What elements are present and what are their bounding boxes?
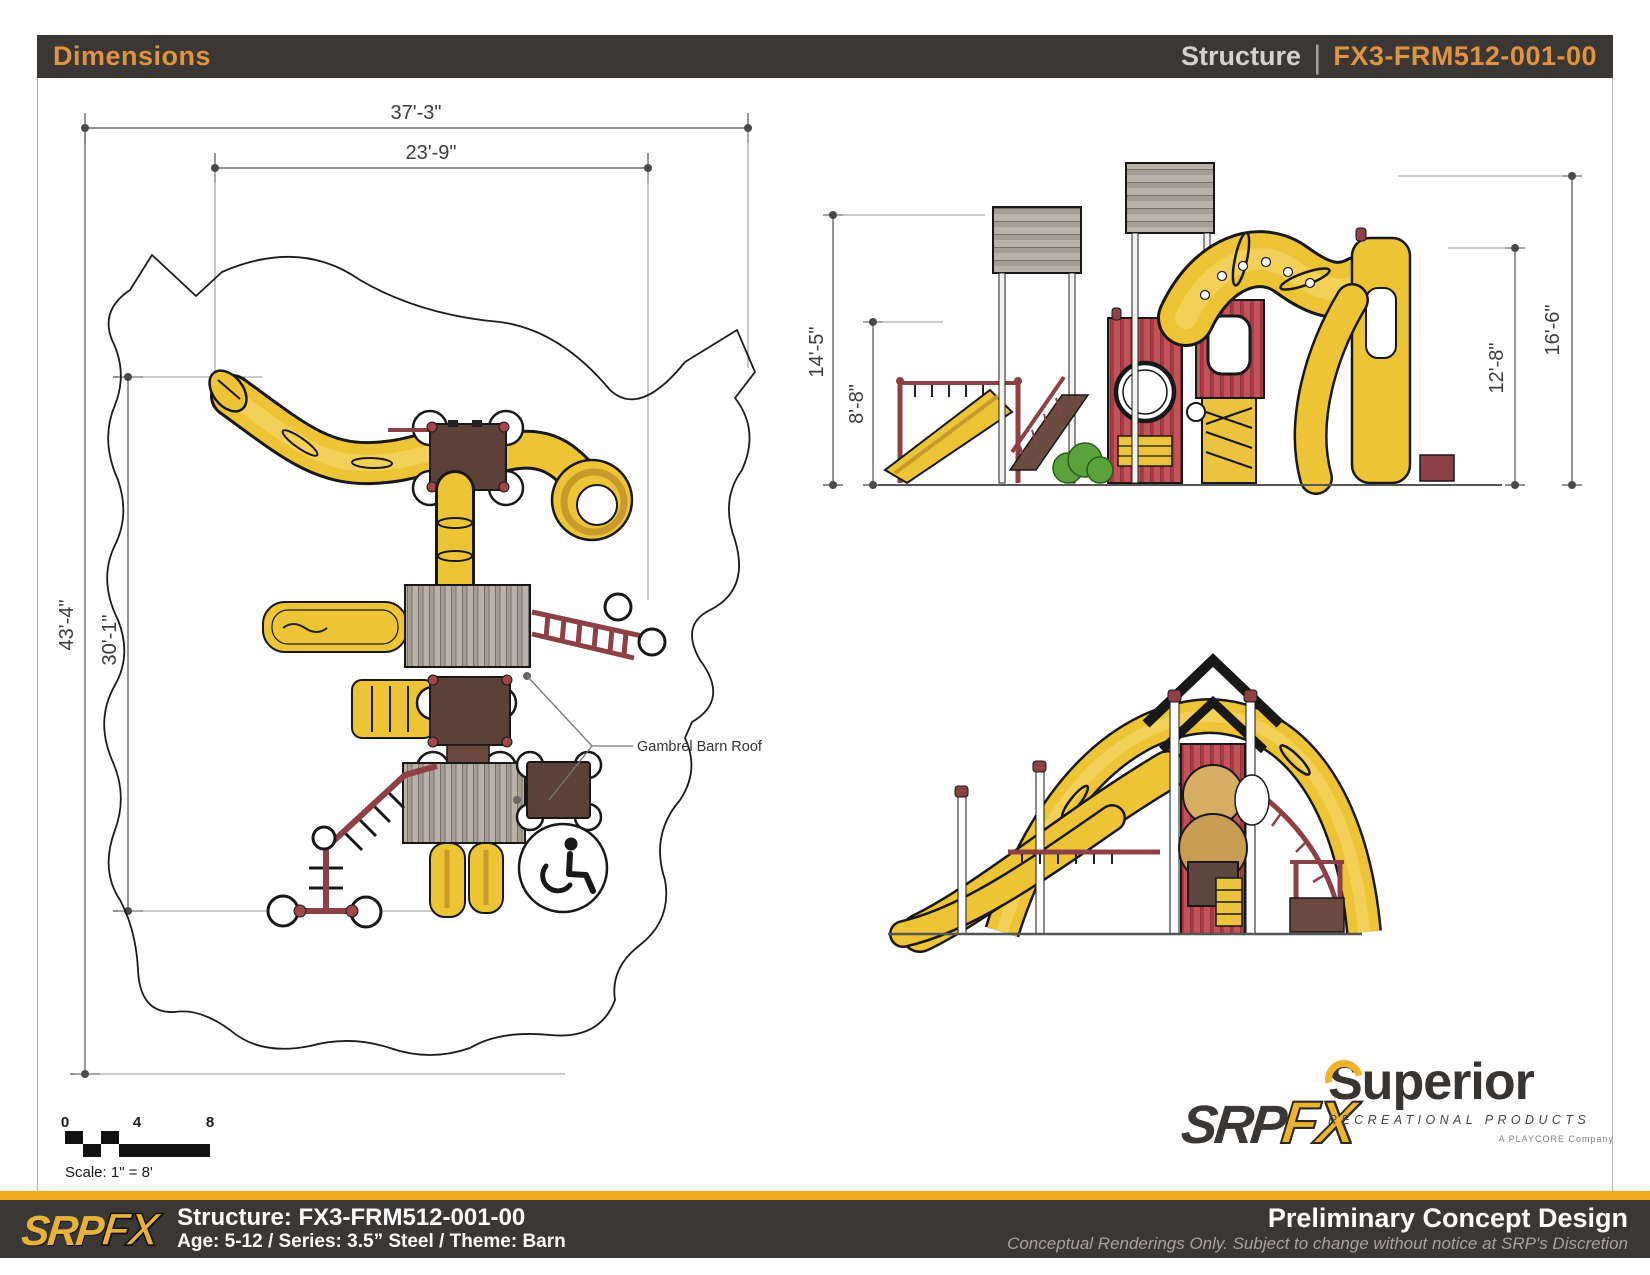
hub-detail	[472, 420, 482, 427]
front-right-deck	[1290, 898, 1344, 932]
drawing-sheet: 37'-3" 23'-9" 43'-4" 30'-1"	[0, 0, 1650, 1275]
side-deck	[527, 762, 590, 818]
front-elevation	[888, 660, 1364, 934]
dim-roof-height: 14'-5"	[806, 327, 828, 378]
dim-tower-roof-height: 16'-6"	[1542, 305, 1564, 356]
slide-tower	[1352, 238, 1410, 483]
superior-wordmark: Superior	[1328, 1056, 1614, 1108]
scale-tick-0: 0	[61, 1114, 69, 1131]
roof-callout-label: Gambrel Barn Roof	[637, 739, 763, 755]
structure-label: Structure	[1181, 41, 1301, 72]
ladder-ring	[605, 594, 631, 620]
scale-bar: 0 4 8 Scale: 1" = 8'	[61, 1114, 214, 1181]
side-left-slide	[885, 390, 1012, 483]
gambrel-roof-2	[403, 763, 525, 843]
structure-id: FX3-FRM512-001-00	[1333, 41, 1597, 72]
side-roof-1	[993, 207, 1081, 273]
side-roof-2	[1126, 163, 1214, 233]
ladder-ring	[639, 629, 665, 655]
title-bar: Dimensions Structure | FX3-FRM512-001-00	[37, 35, 1613, 78]
footer-accent-stripe	[0, 1191, 1650, 1200]
dim-inner-depth: 30'-1"	[99, 615, 121, 666]
scale-tick-4: 4	[133, 1114, 142, 1131]
footer-logo-srp: SRP	[19, 1207, 104, 1254]
side-elevation: 14'-5" 8'-8" 16'-6" 12'-8"	[806, 163, 1582, 489]
footer-logo-fx: FX	[100, 1203, 160, 1255]
callout-dot	[513, 796, 521, 804]
superior-subtitle: RECREATIONAL PRODUCTS	[1328, 1113, 1614, 1127]
side-structure	[885, 163, 1454, 483]
scale-tick-8: 8	[206, 1114, 214, 1131]
funnel-mouth	[577, 485, 617, 525]
footer-structure-line: Structure: FX3-FRM512-001-00	[177, 1204, 566, 1232]
bush	[1053, 443, 1113, 483]
footer-srpfx-logo: SRPFX	[19, 1202, 160, 1256]
dim-overall-width: 37'-3"	[391, 102, 442, 124]
footer-status-title: Preliminary Concept Design	[1007, 1204, 1628, 1234]
plan-view: 37'-3" 23'-9" 43'-4" 30'-1"	[56, 102, 763, 1078]
deck-2	[430, 677, 510, 745]
srpfx-logo-srp: SRP	[1179, 1095, 1287, 1155]
scale-label: Scale: 1" = 8'	[65, 1164, 153, 1181]
accessible-symbol	[519, 824, 607, 912]
title-divider: |	[1313, 41, 1321, 73]
playcore-line: A PLAYCORE Company	[1328, 1134, 1614, 1144]
footer-details-line: Age: 5-12 / Series: 3.5” Steel / Theme: …	[177, 1231, 566, 1254]
superior-logo: Superior RECREATIONAL PRODUCTS A PLAYCOR…	[1328, 1056, 1614, 1144]
dim-slide-height: 12'-8"	[1486, 343, 1508, 394]
hub-detail	[448, 420, 458, 427]
dim-inner-width: 23'-9"	[406, 142, 457, 164]
bench	[1420, 455, 1454, 481]
scale-bar-blocks	[65, 1131, 210, 1157]
footer-disclaimer: Conceptual Renderings Only. Subject to c…	[1007, 1233, 1628, 1254]
sheet-title: Dimensions	[53, 41, 211, 72]
footer-bar: SRPFX Structure: FX3-FRM512-001-00 Age: …	[0, 1200, 1650, 1258]
dim-overall-depth: 43'-4"	[56, 600, 78, 651]
dim-deck-height: 8'-8"	[846, 384, 868, 424]
gambrel-roof-1	[405, 585, 530, 667]
